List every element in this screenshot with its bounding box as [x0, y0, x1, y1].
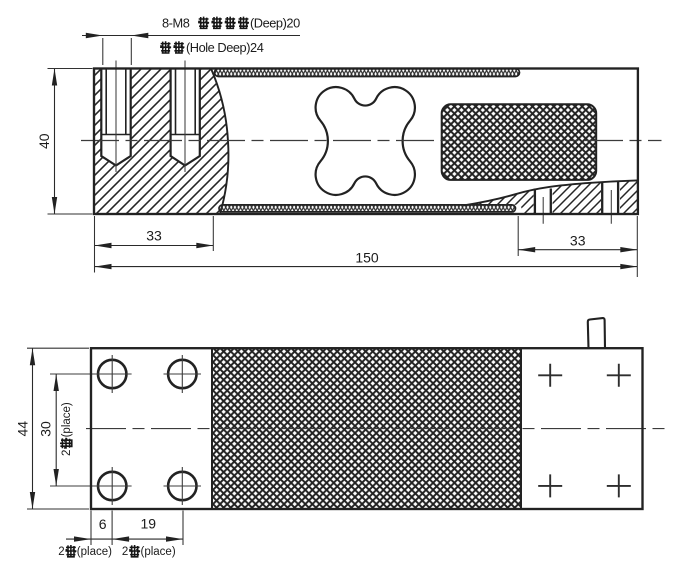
svg-text:(place): (place): [61, 402, 73, 437]
svg-text:2: 2: [58, 546, 64, 558]
svg-text:40: 40: [36, 133, 52, 149]
svg-text:33: 33: [146, 228, 162, 244]
svg-text:2: 2: [122, 546, 128, 558]
svg-text:150: 150: [355, 249, 379, 265]
svg-text:(place): (place): [77, 546, 112, 558]
svg-text:(place): (place): [141, 546, 176, 558]
svg-text:6: 6: [99, 516, 107, 532]
svg-text:2: 2: [61, 450, 73, 456]
svg-text:33: 33: [570, 232, 586, 248]
svg-text:19: 19: [141, 516, 157, 532]
svg-text:30: 30: [38, 421, 54, 437]
svg-text:(Deep)20: (Deep)20: [250, 16, 300, 31]
svg-text:44: 44: [14, 421, 30, 437]
svg-text:(Hole Deep)24: (Hole Deep)24: [186, 40, 264, 55]
svg-text:8-M8: 8-M8: [162, 16, 190, 31]
